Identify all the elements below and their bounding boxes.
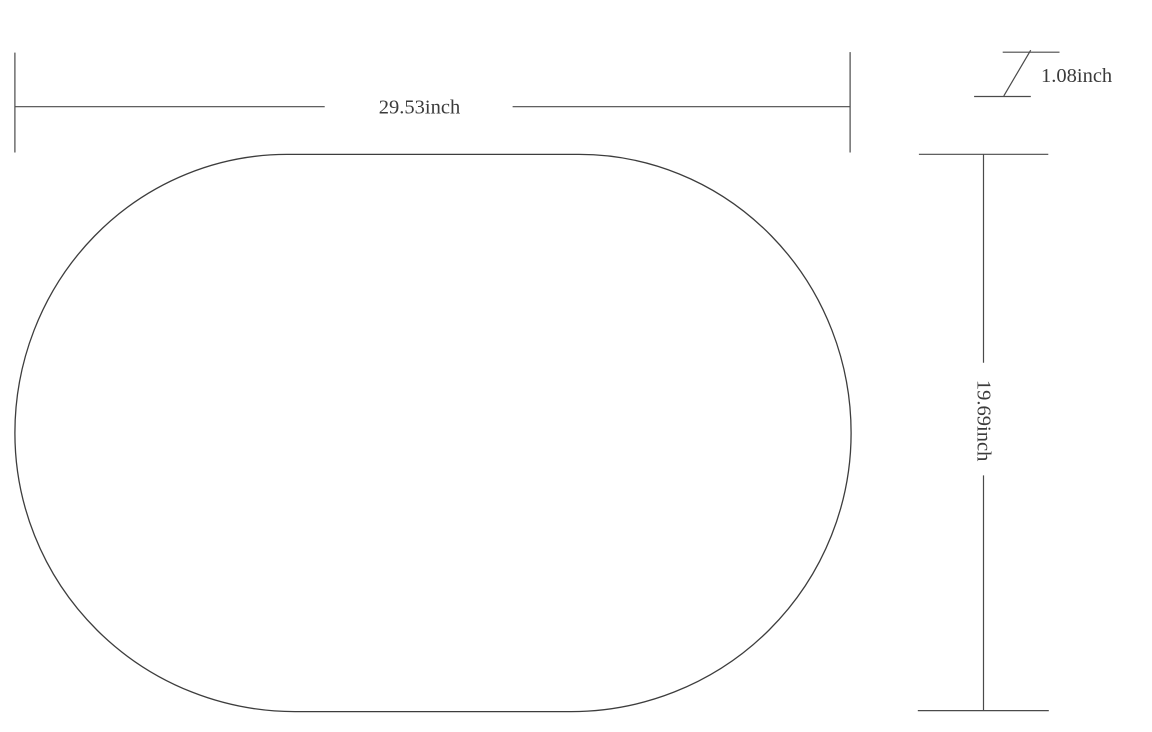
svg-text:29.53inch: 29.53inch — [379, 97, 460, 119]
svg-text:1.08inch: 1.08inch — [1041, 65, 1112, 87]
svg-text:19.69inch: 19.69inch — [973, 380, 995, 461]
